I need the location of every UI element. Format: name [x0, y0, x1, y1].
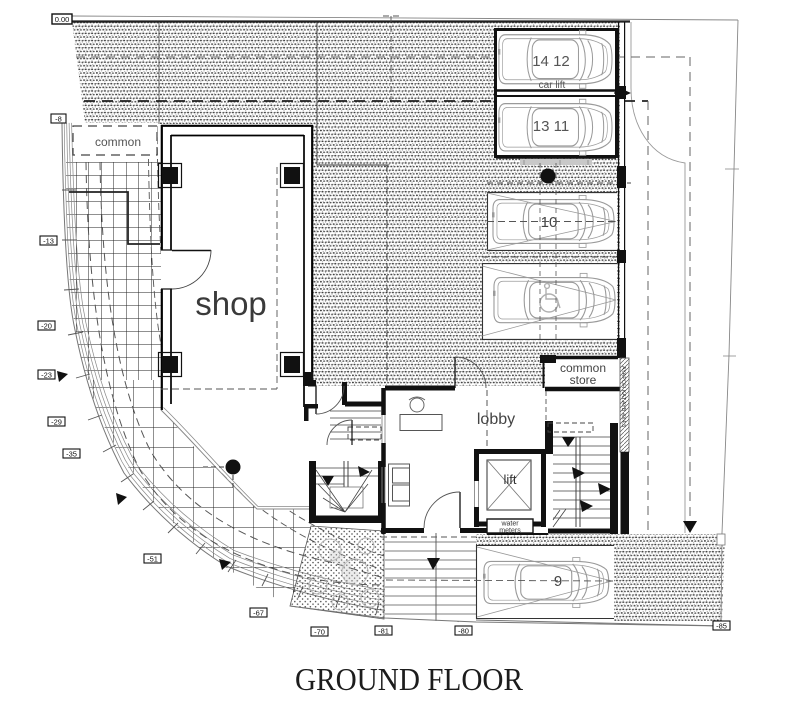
svg-text:shop: shop	[195, 285, 267, 322]
svg-text:0.00: 0.00	[55, 15, 70, 24]
svg-text:9: 9	[554, 573, 562, 590]
svg-text:-23: -23	[41, 371, 52, 380]
svg-text:14 12: 14 12	[532, 53, 570, 70]
svg-text:-8: -8	[55, 115, 62, 124]
svg-text:store: store	[570, 373, 597, 387]
svg-text:-81: -81	[378, 627, 389, 636]
svg-text:-67: -67	[253, 609, 264, 618]
svg-text:-80: -80	[458, 627, 469, 636]
svg-text:AYAPOH KAT.AYB 4X4.5: AYAPOH KAT.AYB 4X4.5	[620, 366, 626, 427]
svg-text:common: common	[95, 135, 141, 149]
svg-text:-85: -85	[716, 622, 727, 631]
svg-text:lift: lift	[504, 472, 517, 487]
svg-text:-35: -35	[66, 450, 77, 459]
svg-text:10: 10	[541, 214, 558, 231]
svg-text:water: water	[500, 521, 519, 528]
svg-text:-70: -70	[314, 628, 325, 637]
svg-text:-51: -51	[147, 555, 158, 564]
svg-text:car lift: car lift	[539, 80, 566, 91]
svg-text:-13: -13	[43, 237, 54, 246]
svg-text:lobby: lobby	[477, 411, 515, 428]
svg-text:-20: -20	[41, 322, 52, 331]
svg-text:GROUND FLOOR: GROUND FLOOR	[295, 661, 524, 697]
svg-text:13 11: 13 11	[533, 118, 569, 135]
svg-text:-29: -29	[51, 418, 62, 427]
